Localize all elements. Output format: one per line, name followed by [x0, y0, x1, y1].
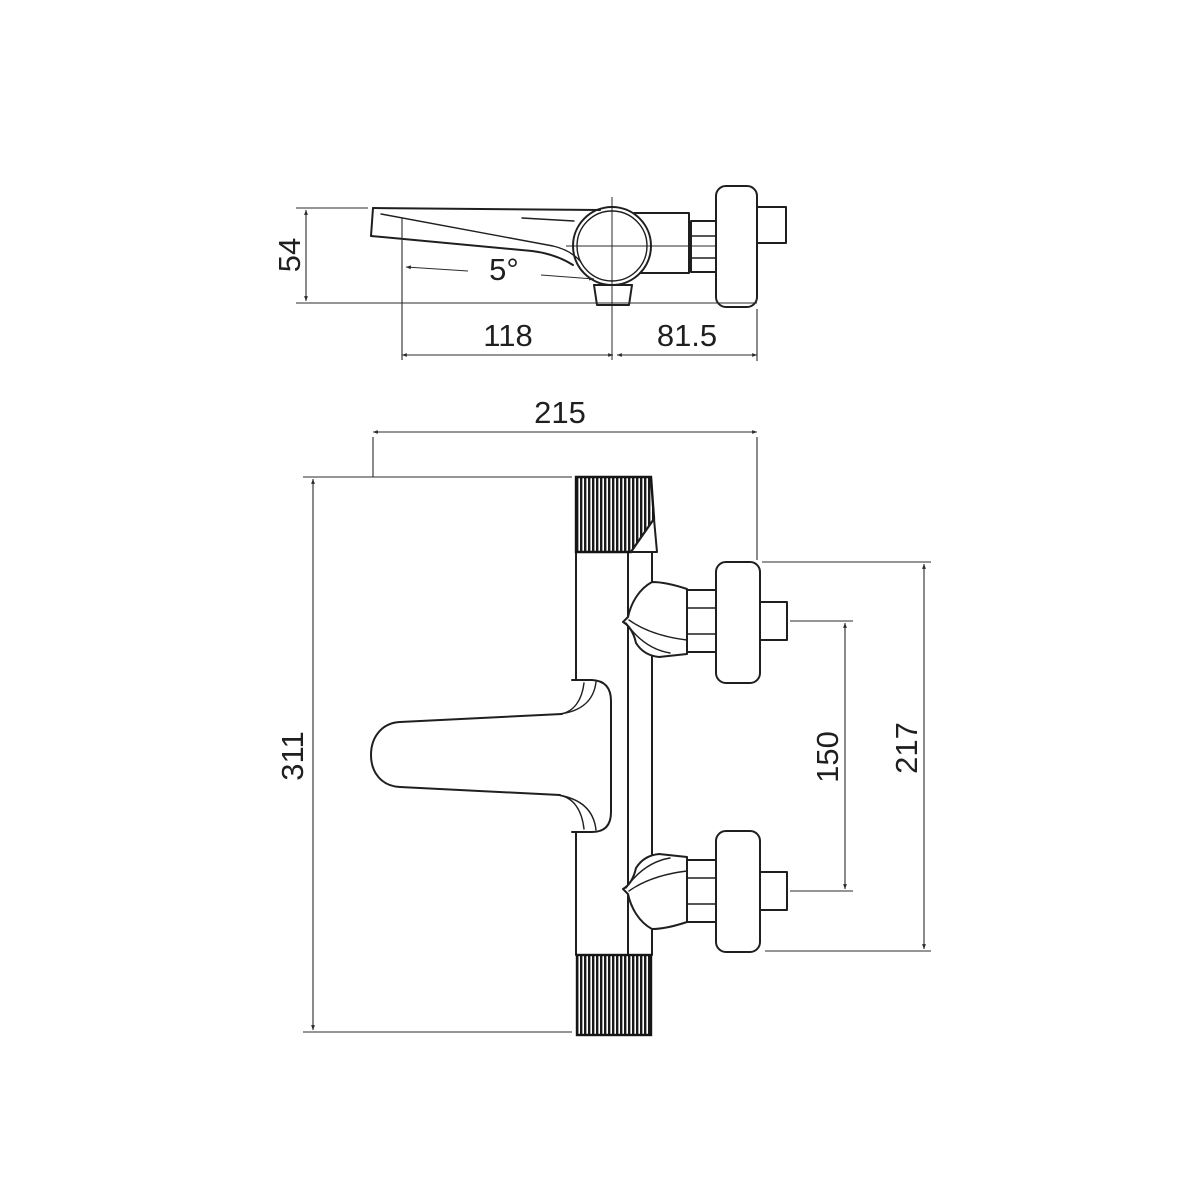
dim-81-5-label: 81.5	[657, 318, 717, 353]
wall-nipple-top	[760, 602, 787, 640]
lever-spout-outline	[371, 208, 600, 265]
side-view: 54 5° 118 81.5	[272, 186, 786, 361]
knurled-connector-top	[576, 477, 657, 552]
dimension-150: 150	[790, 621, 853, 891]
union-nut-top	[687, 590, 717, 652]
dim-217-label: 217	[889, 722, 924, 774]
front-view: 215 311 150 217	[275, 395, 931, 1035]
dim-54-label: 54	[272, 238, 307, 272]
wall-nipple-side	[757, 207, 786, 243]
union-nut-bottom	[687, 860, 717, 922]
wall-escutcheon-side	[716, 186, 757, 307]
dimension-81-5: 81.5	[617, 318, 757, 355]
wall-escutcheon-bottom	[716, 831, 760, 952]
dim-118-label: 118	[483, 318, 532, 353]
dim-150-label: 150	[810, 731, 845, 783]
handle-lever-fill	[371, 712, 562, 797]
eccentric-union-bottom	[623, 831, 787, 952]
wall-nipple-bottom	[760, 872, 787, 910]
dim-215-label: 215	[534, 395, 586, 430]
dim-angle-label: 5°	[489, 252, 519, 287]
handle-assembly	[371, 680, 611, 832]
eccentric-union-top	[623, 562, 787, 683]
spout-outlet	[594, 285, 632, 305]
wall-escutcheon-top	[716, 562, 760, 683]
knurled-connector-bottom	[577, 955, 651, 1035]
technical-drawing-page: 54 5° 118 81.5	[0, 0, 1200, 1200]
faucet-technical-drawing: 54 5° 118 81.5	[0, 0, 1200, 1200]
dim-311-label: 311	[275, 731, 310, 780]
